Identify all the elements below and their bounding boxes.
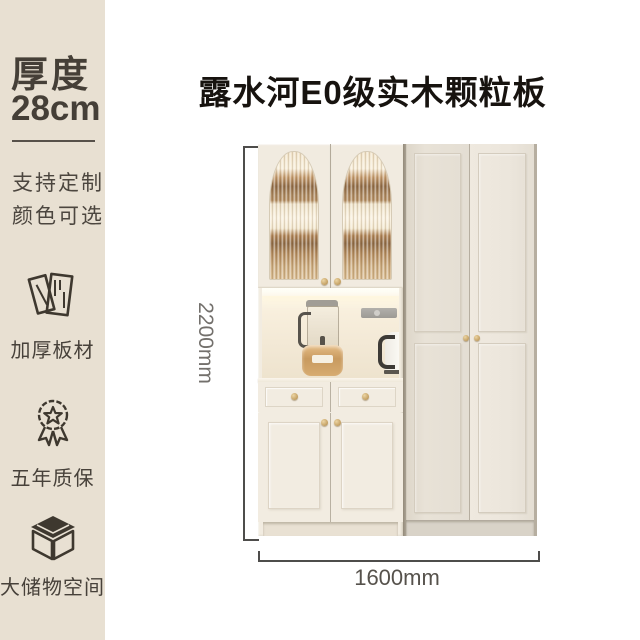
storage-box-icon [0,514,105,567]
section-gap-shadow [403,144,407,536]
fluted-glass-pane [269,151,319,280]
feature-label-storage: 大储物空间 [0,571,105,600]
door-panel [414,153,461,332]
display-cabinet-section [258,144,403,536]
drawer-knob [291,393,298,400]
warranty-medal-icon [0,396,105,455]
wardrobe-plinth [406,520,534,536]
customize-note-line1: 支持定制 [12,167,104,197]
sidebar-divider [12,140,95,142]
blender-handle [298,312,311,348]
drawer-knob [362,393,369,400]
glass-door-right [331,144,403,288]
under-cabinet-light [262,288,399,296]
lower-door-left [258,413,330,522]
blender-label-window [312,355,333,363]
fluted-glass-pane [342,151,392,280]
feature-label-thick-board: 加厚板材 [0,334,105,363]
socket-outlet [374,310,380,316]
width-dimension-label: 1600mm [317,565,477,591]
sidebar: 厚度 28cm 支持定制 颜色可选 加厚板材 [0,0,105,640]
door-knob [334,278,341,285]
wardrobe-door-left [406,144,469,520]
wardrobe-section [403,144,537,536]
door-knob [474,335,480,341]
door-panel [478,343,526,513]
glass-door-left [258,144,330,288]
door-panel [478,153,526,332]
door-knob [334,419,341,426]
wall-socket-strip [361,308,397,318]
wardrobe-door-right [470,144,534,520]
cabinet-plinth [263,522,398,536]
height-dimension-label: 2200mm [193,283,217,403]
door-panel [341,422,393,509]
door-knob [321,419,328,426]
blender [298,298,346,378]
customize-note-line2: 颜色可选 [12,200,104,230]
kettle-handle [378,335,395,369]
thick-board-icon [0,268,105,327]
door-knob [463,335,469,341]
height-dimension-bracket [243,146,259,541]
door-knob [321,278,328,285]
width-dimension-bracket [258,551,540,562]
open-shelf-niche [262,288,399,378]
drawer-row [258,382,403,412]
lower-door-row [258,413,403,522]
kettle [378,332,399,376]
feature-label-warranty: 五年质保 [0,462,105,491]
thickness-value: 28cm [11,89,101,129]
door-panel [414,343,461,513]
cabinet-product-image [258,144,537,536]
lower-door-right [331,413,403,522]
page-title: 露水河E0级实木颗粒板 [105,66,640,114]
door-panel [268,422,320,509]
product-detail-page: 厚度 28cm 支持定制 颜色可选 加厚板材 [0,0,640,640]
glass-door-row [258,144,403,288]
kettle-base [384,370,399,374]
